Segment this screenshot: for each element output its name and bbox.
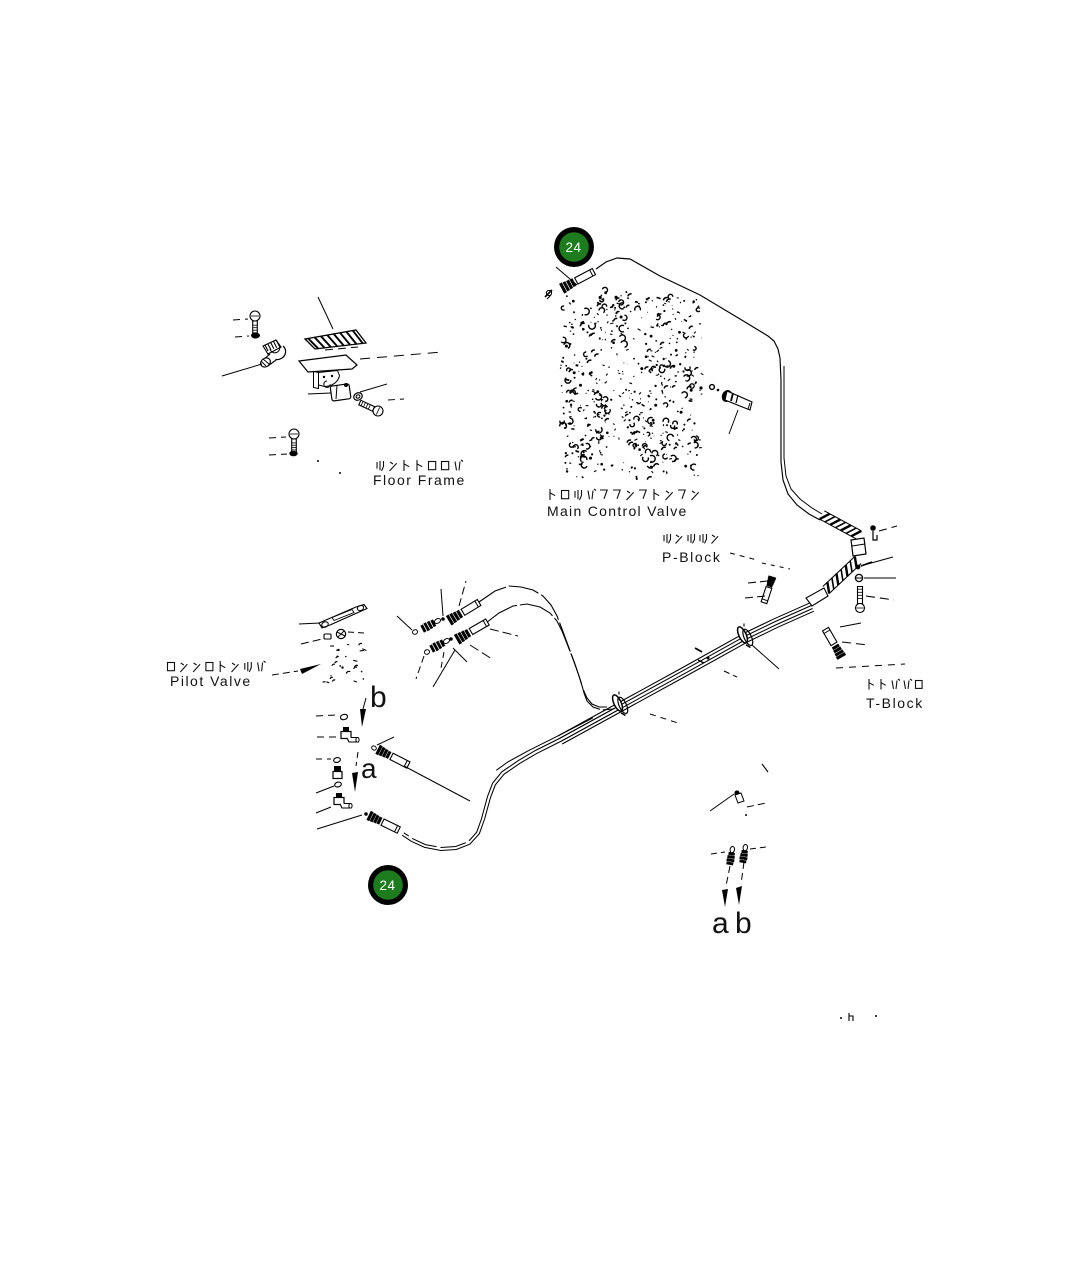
svg-text:b: b [370,681,387,714]
svg-text:Pilot Valve: Pilot Valve [170,673,252,689]
svg-text:P-Block: P-Block [662,549,721,565]
svg-text:24: 24 [565,240,581,255]
svg-text:Floor Frame: Floor Frame [373,472,466,488]
svg-text:a: a [712,907,729,940]
svg-text:T-Block: T-Block [866,695,924,711]
svg-text:24: 24 [379,878,395,893]
svg-text:Main Control Valve: Main Control Valve [547,503,688,519]
svg-text:b: b [735,907,752,940]
svg-text:a: a [361,753,377,784]
